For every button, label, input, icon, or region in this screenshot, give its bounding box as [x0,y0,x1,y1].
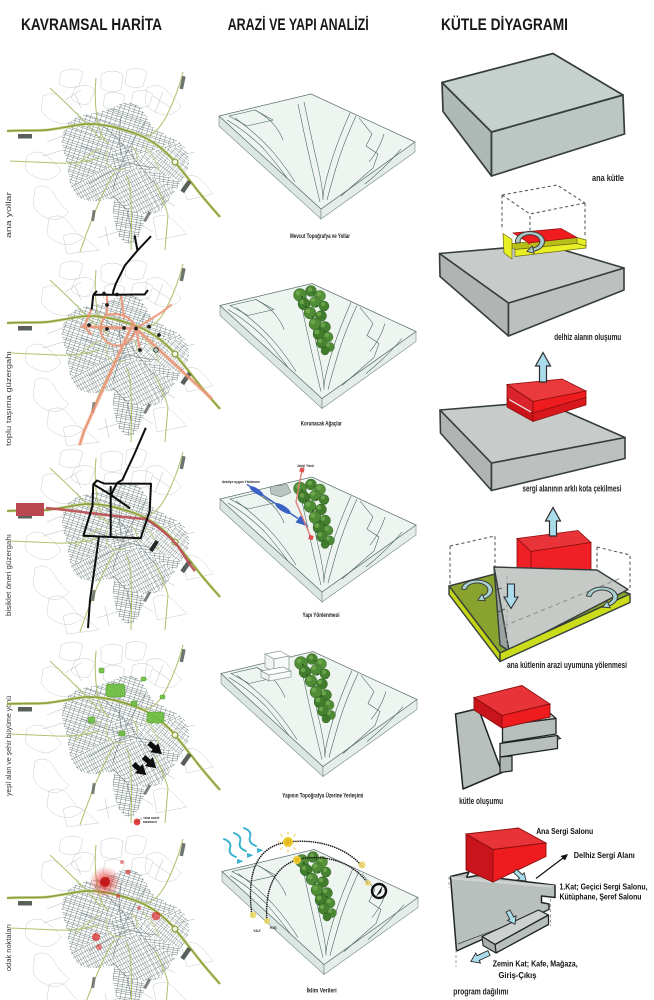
svg-text:Korunacak Ağaçlar: Korunacak Ağaçlar [301,421,342,428]
svg-text:KAVRAMSAL HARİTA: KAVRAMSAL HARİTA [21,15,162,34]
svg-text:İklim Verileri: İklim Verileri [307,988,337,995]
svg-text:KÜTLE DİYAGRAMI: KÜTLE DİYAGRAMI [441,15,568,34]
svg-text:delhiz alanın oluşumu: delhiz alanın oluşumu [554,332,621,342]
svg-text:toplu taşıma güzergahı: toplu taşıma güzergahı [4,351,13,446]
svg-text:ARAZİ VE YAPI ANALİZİ: ARAZİ VE YAPI ANALİZİ [228,15,369,34]
svg-text:MERKEZİ: MERKEZİ [143,820,157,824]
svg-text:Kütüphane, Şeref Salonu: Kütüphane, Şeref Salonu [560,892,642,902]
svg-text:1.Kat; Geçici Sergi Salonu,: 1.Kat; Geçici Sergi Salonu, [560,882,648,892]
svg-text:Delhiz Sergi Alanı: Delhiz Sergi Alanı [574,850,635,860]
svg-text:Yapının Topoğrafya Üzerine Yer: Yapının Topoğrafya Üzerine Yerleşimi [282,793,363,800]
svg-text:YAZ: YAZ [253,928,261,933]
svg-text:yeşil alan ve şehir büyüme yön: yeşil alan ve şehir büyüme yönü [4,696,13,796]
svg-text:Yapı Yönlenmesi: Yapı Yönlenmesi [303,612,340,619]
svg-text:odak noktaları: odak noktaları [4,924,13,971]
svg-text:Mevcut Topoğrafya ve Yollar: Mevcut Topoğrafya ve Yollar [290,233,350,240]
svg-text:Araziye uygun Yönlenme: Araziye uygun Yönlenme [222,480,260,484]
svg-text:kütle oluşumu: kütle oluşumu [459,796,503,806]
svg-text:Zemin Kat; Kafe, Mağaza,: Zemin Kat; Kafe, Mağaza, [493,959,578,969]
svg-text:program dağılımı: program dağılımı [453,987,508,997]
svg-text:ana kütle: ana kütle [592,173,624,183]
svg-text:bisiklet öneri güzergahı: bisiklet öneri güzergahı [4,534,13,616]
svg-text:Jeloji Yönü: Jeloji Yönü [297,464,314,468]
svg-text:KIŞ: KIŞ [270,925,277,930]
svg-text:ana kütlenin arazi uyumuna yöl: ana kütlenin arazi uyumuna yölenmesi [507,660,627,670]
svg-text:Ana Sergi Salonu: Ana Sergi Salonu [536,826,593,836]
svg-text:ana yollar: ana yollar [4,191,13,238]
svg-text:Giriş-Çıkış: Giriş-Çıkış [499,970,537,980]
svg-text:sergi alanının arklı kota çeki: sergi alanının arklı kota çekilmesi [523,484,622,494]
